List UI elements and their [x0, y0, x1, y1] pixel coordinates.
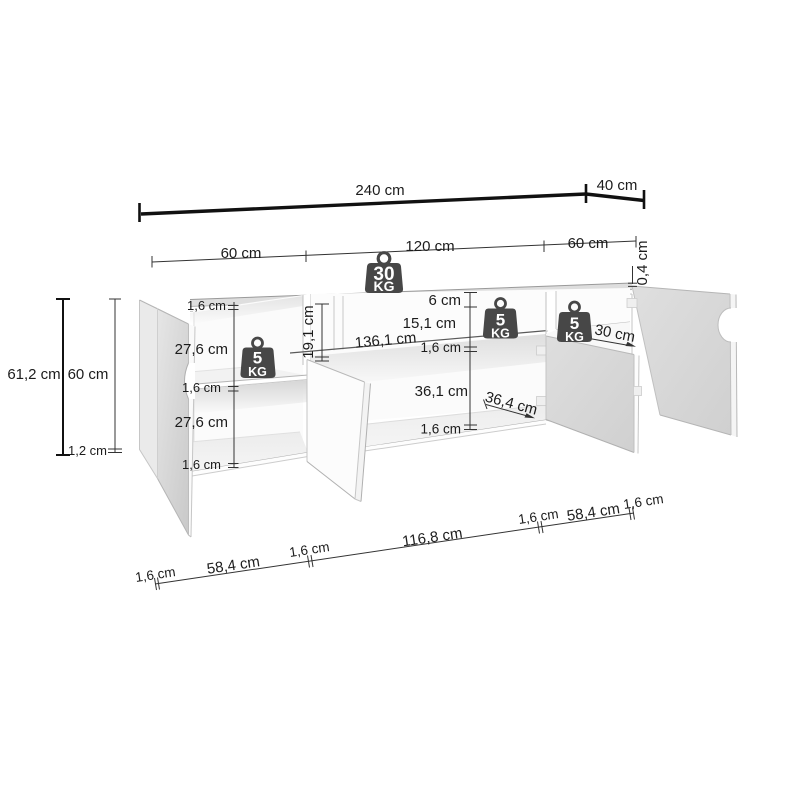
svg-text:27,6 cm: 27,6 cm — [175, 341, 228, 358]
svg-text:1,6 cm: 1,6 cm — [187, 298, 226, 313]
svg-text:60 cm: 60 cm — [221, 245, 262, 262]
svg-text:61,2 cm: 61,2 cm — [7, 366, 60, 383]
svg-text:KG: KG — [374, 278, 395, 294]
svg-text:1,6 cm: 1,6 cm — [420, 340, 461, 355]
svg-text:60 cm: 60 cm — [568, 235, 609, 252]
svg-text:60 cm: 60 cm — [68, 366, 109, 383]
svg-text:1,6 cm: 1,6 cm — [420, 422, 461, 437]
svg-text:27,6 cm: 27,6 cm — [175, 414, 228, 431]
svg-text:KG: KG — [565, 330, 584, 344]
svg-text:240 cm: 240 cm — [355, 182, 404, 199]
svg-text:40 cm: 40 cm — [597, 177, 638, 194]
svg-text:0,4 cm: 0,4 cm — [634, 240, 651, 285]
svg-text:1,2 cm: 1,2 cm — [68, 443, 107, 458]
svg-text:1,6 cm: 1,6 cm — [182, 380, 221, 395]
svg-text:19,1 cm: 19,1 cm — [300, 305, 317, 358]
svg-text:KG: KG — [248, 365, 267, 379]
svg-text:36,1 cm: 36,1 cm — [415, 383, 468, 400]
svg-text:6 cm: 6 cm — [428, 292, 461, 309]
svg-text:1,6 cm: 1,6 cm — [182, 457, 221, 472]
svg-text:120 cm: 120 cm — [405, 238, 454, 255]
svg-text:KG: KG — [491, 327, 510, 341]
